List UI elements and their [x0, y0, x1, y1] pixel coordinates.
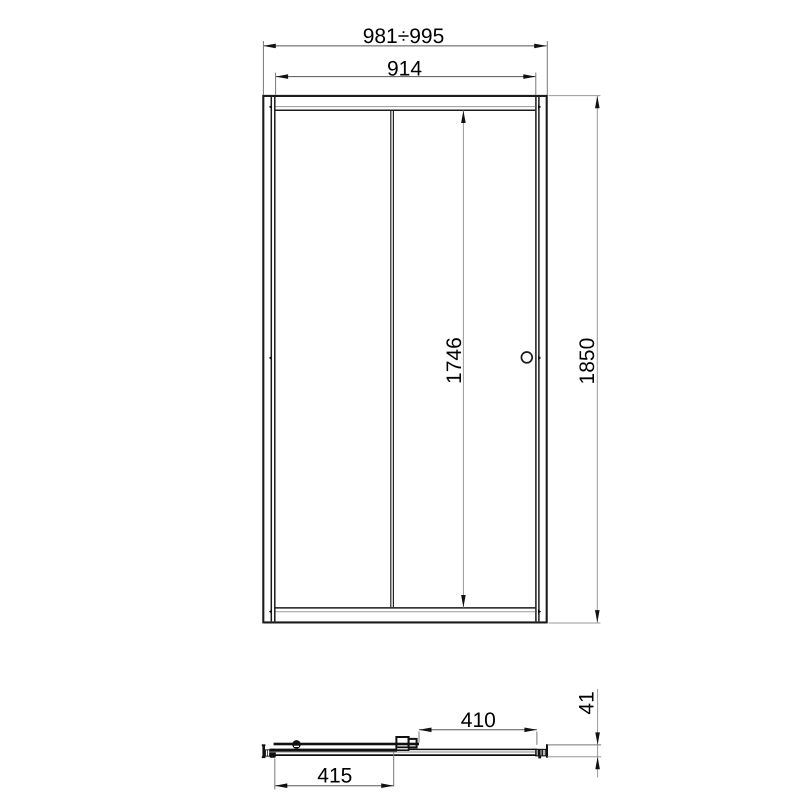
svg-text:1850: 1850 [576, 338, 599, 385]
svg-text:415: 415 [317, 764, 352, 787]
svg-text:41: 41 [576, 691, 599, 714]
svg-text:981÷995: 981÷995 [363, 25, 445, 48]
svg-text:410: 410 [461, 709, 496, 732]
svg-text:1746: 1746 [443, 337, 466, 384]
